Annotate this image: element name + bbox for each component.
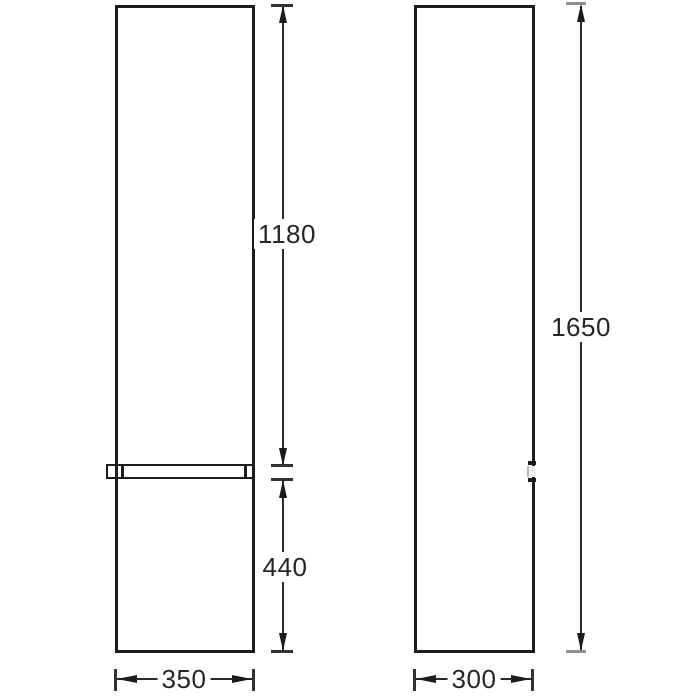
- side-view-handle-notch: [530, 466, 535, 477]
- extension-tick: [252, 669, 255, 691]
- side-view-outline: [414, 5, 535, 653]
- arrowhead-down: [577, 633, 585, 651]
- dim-label-upper-door-height: 1180: [254, 219, 320, 249]
- arrowhead-left: [416, 675, 436, 683]
- dim-label-lower-door-height: 440: [259, 552, 312, 582]
- extension-tick: [271, 464, 293, 467]
- arrowhead-up: [577, 4, 585, 22]
- dim-label-front-width: 350: [158, 664, 211, 694]
- arrowhead-down: [279, 633, 287, 651]
- side-view-handle-notch-line: [527, 466, 529, 477]
- arrowhead-left: [117, 675, 137, 683]
- arrowhead-up: [279, 5, 287, 23]
- dim-label-total-height: 1650: [547, 312, 615, 342]
- handle-strip-divider-left: [121, 465, 124, 478]
- handle-strip-divider-right: [244, 465, 247, 478]
- extension-tick: [271, 650, 293, 653]
- extension-tick: [531, 669, 534, 691]
- arrowhead-right: [232, 675, 252, 683]
- front-view-handle-strip: [106, 464, 255, 479]
- arrowhead-right: [511, 675, 531, 683]
- side-view-handle-notch-tick-bottom: [528, 478, 536, 482]
- dim-label-side-depth: 300: [448, 664, 501, 694]
- arrowhead-up: [279, 480, 287, 498]
- cabinet-dimension-drawing: 1180 440 350 1650 300: [0, 0, 697, 697]
- extension-tick-gray: [566, 650, 586, 653]
- side-view-handle-notch-tick-top: [528, 461, 536, 465]
- front-view-outline: [115, 5, 255, 653]
